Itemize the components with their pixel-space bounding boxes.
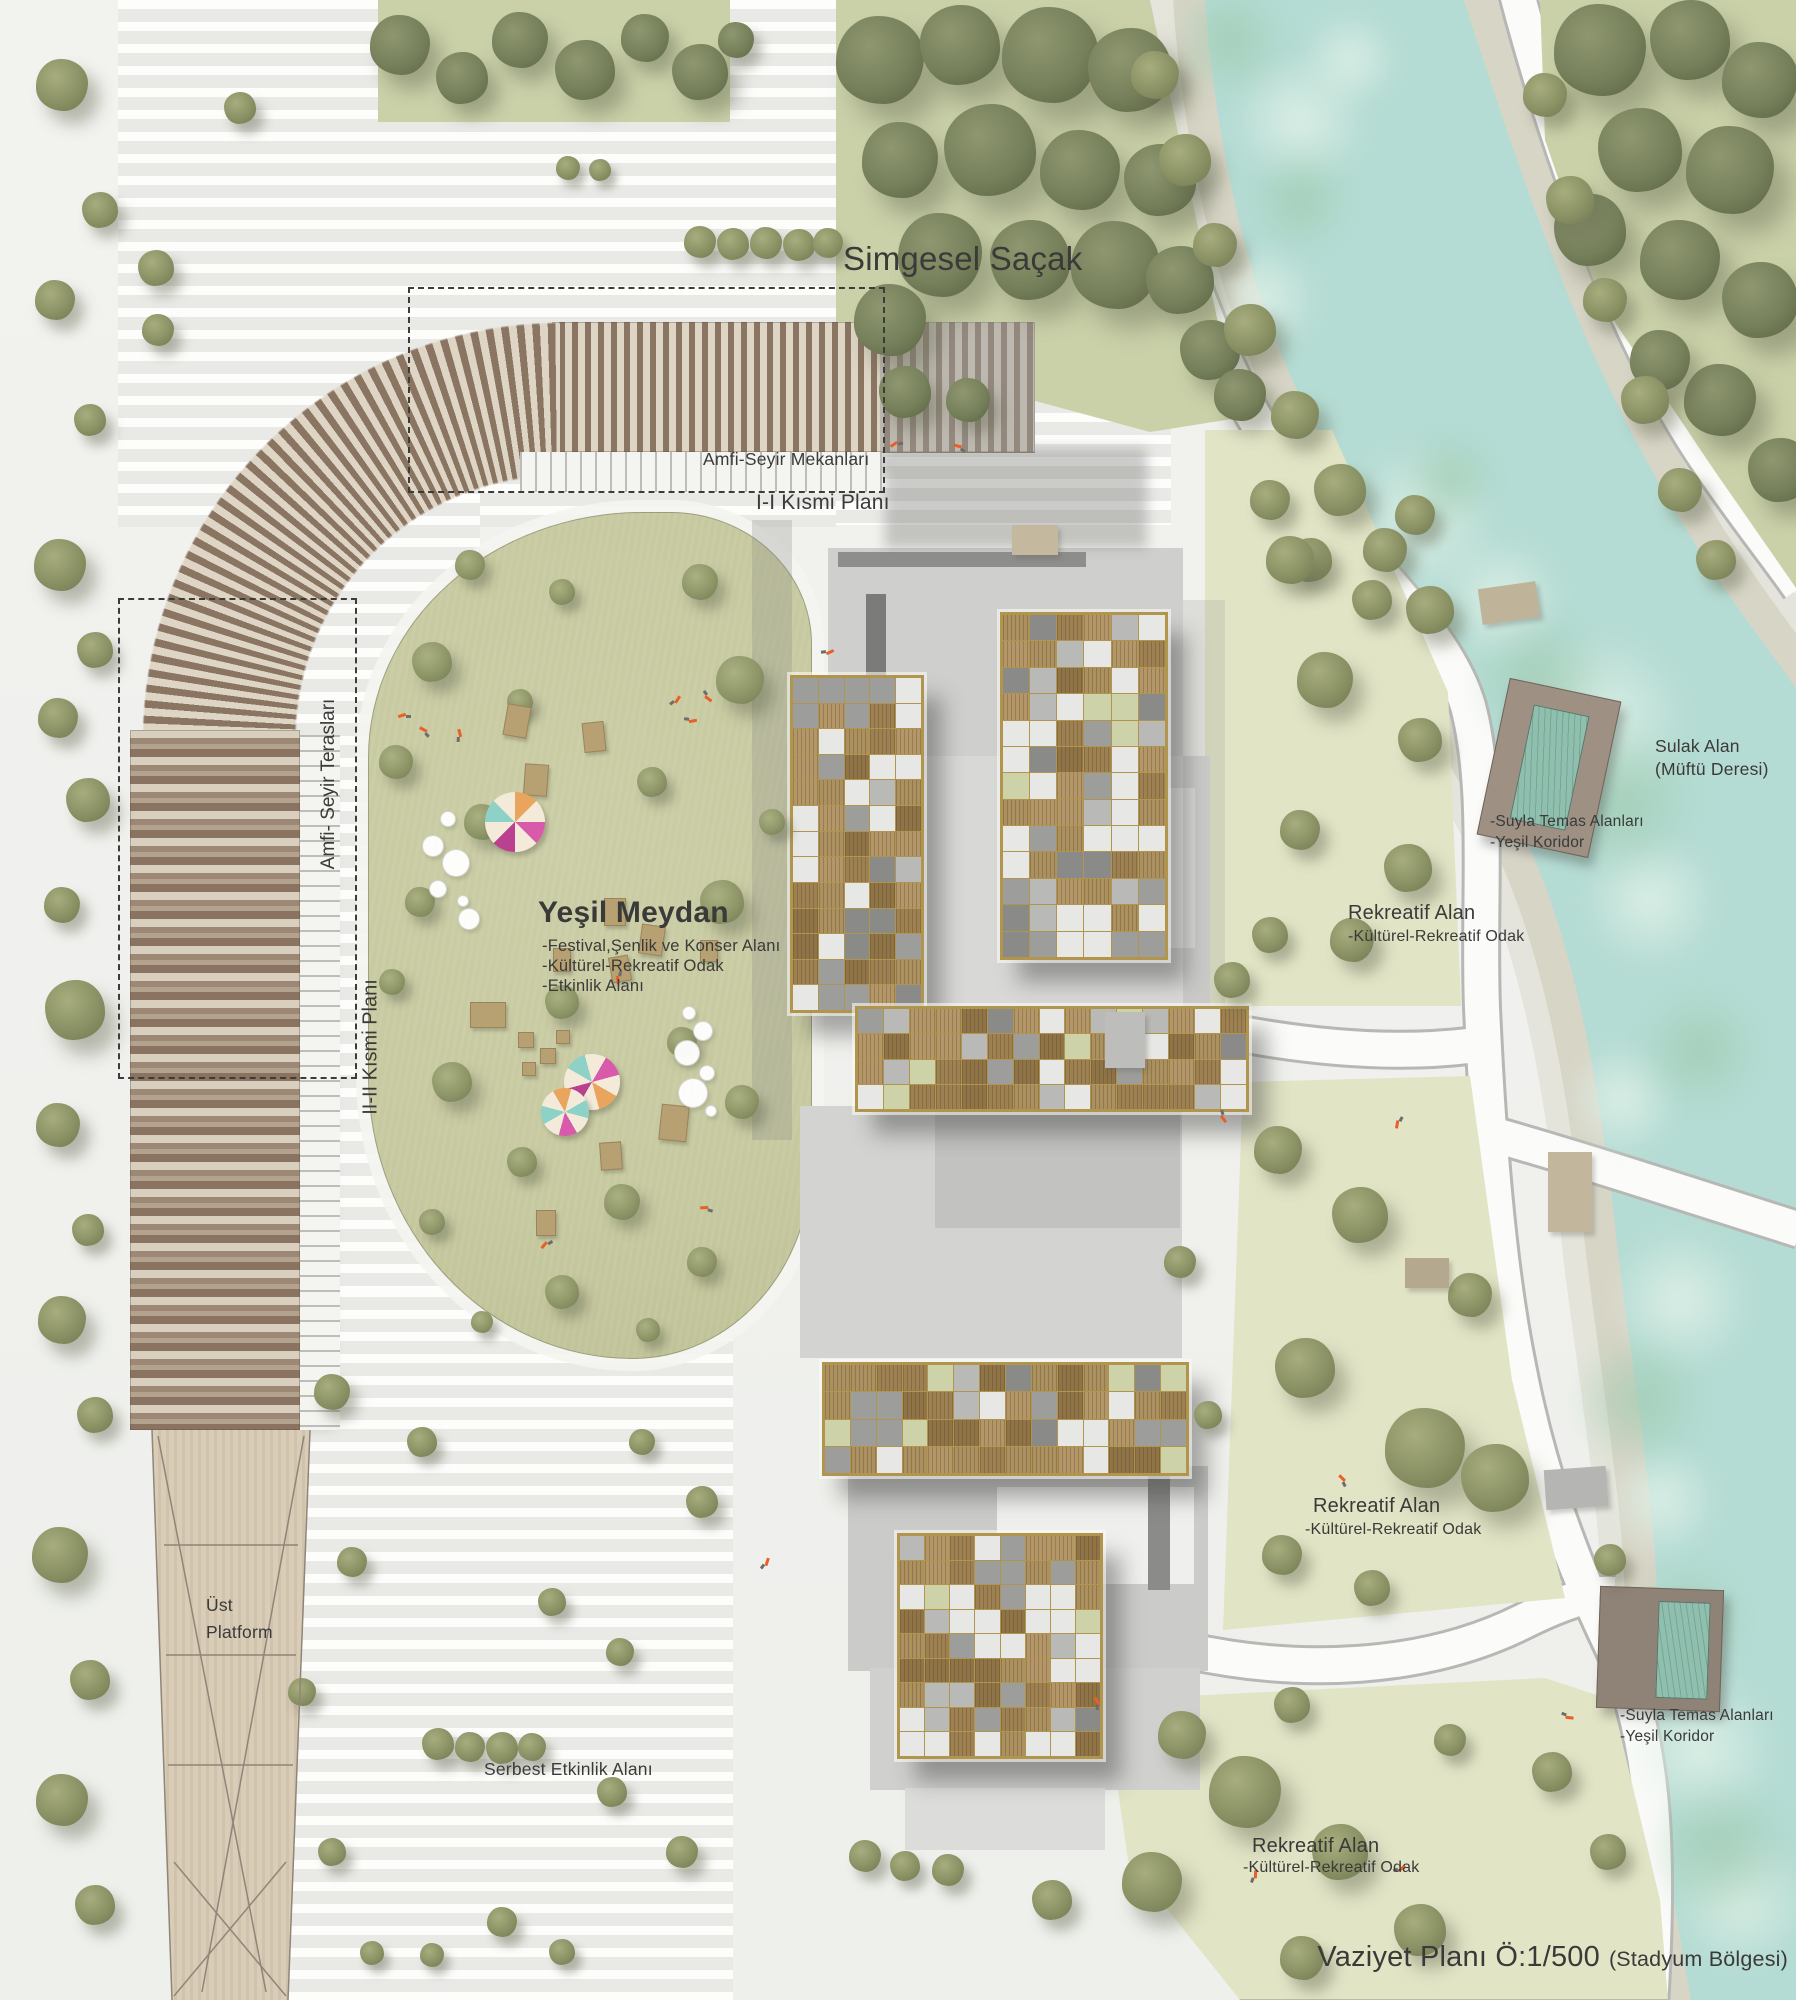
yesil-meydan-item: -Festival,Şenlik ve Konser Alanı: [542, 936, 780, 956]
label-suyla-temas-2: -Suyla Temas Alanları -Yeşil Koridor: [1620, 1706, 1774, 1748]
label-suyla-temas-1: -Suyla Temas Alanları -Yeşil Koridor: [1490, 812, 1644, 854]
ust-line: Üst: [206, 1592, 273, 1619]
label-ust-platform: Üst Platform: [206, 1592, 273, 1646]
plan-title: Vaziyet Planı Ö:1/500 (Stadyum Bölgesi): [1317, 1941, 1788, 1974]
yesil-meydan-item: -Kültürel-Rekreatif Odak: [542, 956, 780, 976]
label-yesil-meydan-items: -Festival,Şenlik ve Konser Alanı -Kültür…: [542, 936, 780, 996]
yesil-meydan-item: -Etkinlik Alanı: [542, 976, 780, 996]
label-rekreatif-1-title: Rekreatif Alan: [1348, 902, 1475, 925]
label-rekreatif-3-sub: -Kültürel-Rekreatif Odak: [1243, 1859, 1419, 1877]
label-sulak-alan: Sulak Alan (Müftü Deresi): [1655, 735, 1769, 781]
suyla-line: -Yeşil Koridor: [1620, 1727, 1774, 1748]
label-rekreatif-1-sub: -Kültürel-Rekreatif Odak: [1348, 928, 1524, 946]
label-serbest-etkinlik: Serbest Etkinlik Alanı: [484, 1759, 653, 1780]
label-simgesel-sacak: Simgesel Saçak: [843, 240, 1082, 278]
plan-title-main: Vaziyet Planı Ö:1/500: [1317, 1941, 1600, 1974]
suyla-line: -Suyla Temas Alanları: [1620, 1706, 1774, 1727]
ust-line: Platform: [206, 1619, 273, 1646]
sulak-line: (Müftü Deresi): [1655, 758, 1769, 781]
sulak-line: Sulak Alan: [1655, 735, 1769, 758]
label-amfi-seyir-mekanlari: Amfi-Seyir Mekanları: [703, 449, 869, 470]
label-rekreatif-3-title: Rekreatif Alan: [1252, 1835, 1379, 1858]
label-amfi-seyir-teraslari: Amfi- Seyir Terasları: [318, 699, 340, 870]
label-rekreatif-2-sub: -Kültürel-Rekreatif Odak: [1305, 1521, 1481, 1539]
site-plan: Simgesel Saçak Amfi-Seyir Mekanları I-I …: [0, 0, 1796, 2000]
suyla-line: -Yeşil Koridor: [1490, 833, 1644, 854]
plan-title-sub: (Stadyum Bölgesi): [1609, 1947, 1788, 1972]
suyla-line: -Suyla Temas Alanları: [1490, 812, 1644, 833]
label-kismi-plani-1: I-I Kısmi Planı: [756, 491, 890, 515]
label-rekreatif-2-title: Rekreatif Alan: [1313, 1495, 1440, 1518]
label-kismi-plani-2: II-II Kısmi Planı: [360, 979, 383, 1115]
label-yesil-meydan-title: Yeşil Meydan: [538, 896, 729, 930]
